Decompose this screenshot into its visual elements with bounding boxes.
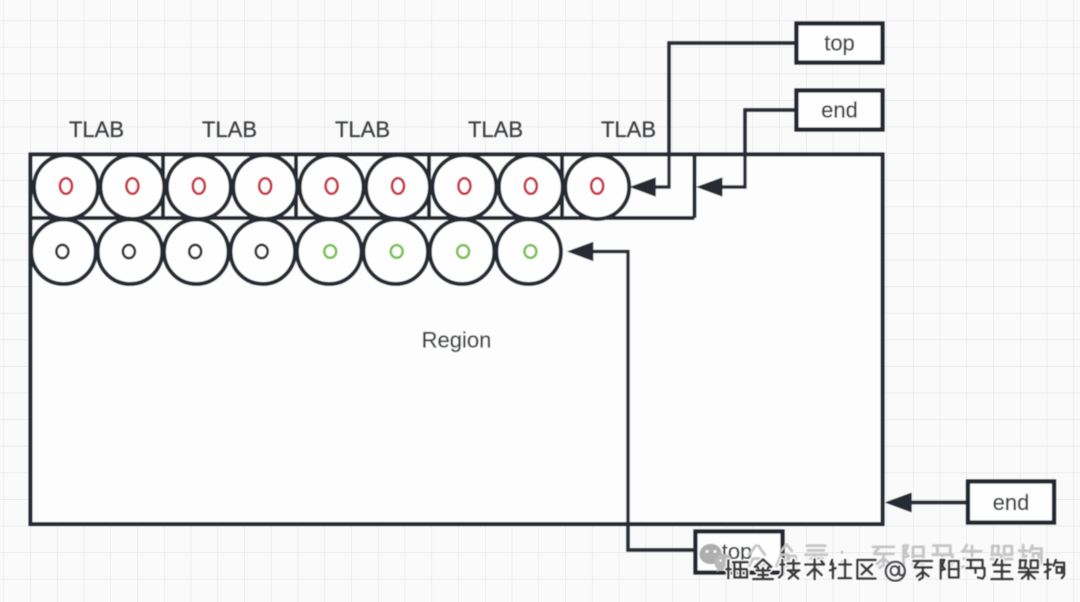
svg-text:end: end — [993, 490, 1030, 515]
svg-text:end: end — [821, 98, 858, 123]
svg-text:Region: Region — [422, 328, 492, 353]
svg-text:TLAB: TLAB — [601, 117, 656, 142]
svg-text:top: top — [824, 31, 855, 56]
svg-text:TLAB: TLAB — [202, 117, 257, 142]
svg-text:TLAB: TLAB — [468, 117, 523, 142]
svg-text:TLAB: TLAB — [69, 117, 124, 142]
svg-text:TLAB: TLAB — [335, 117, 390, 142]
